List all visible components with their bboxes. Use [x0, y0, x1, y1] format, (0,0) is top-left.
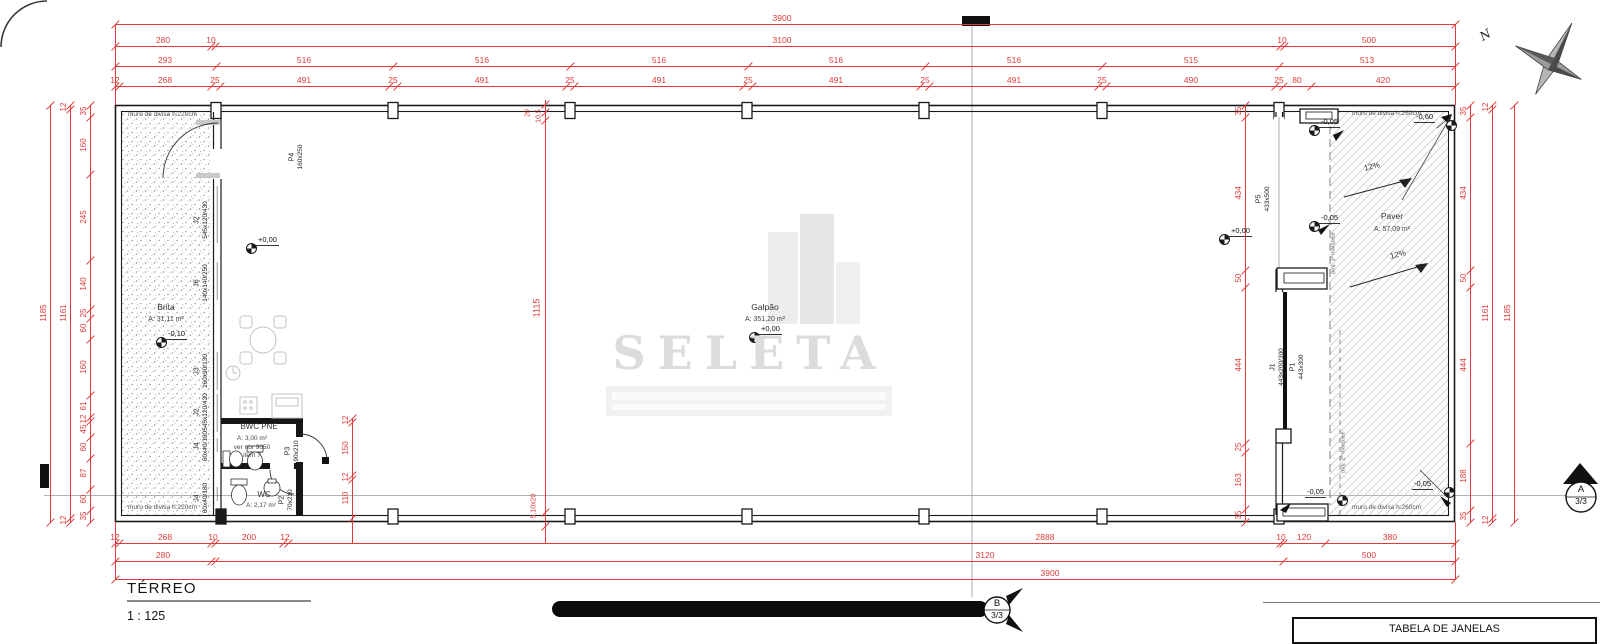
- level-paver-mid-icon: [1309, 221, 1320, 232]
- dim-label: 87: [80, 469, 88, 478]
- dim-label: 516: [652, 56, 666, 65]
- room-brita-area: A: 31,11 m²: [148, 316, 184, 323]
- sheet-title: TÉRREO: [127, 580, 197, 597]
- dim-label: 188: [1460, 469, 1468, 482]
- marquise-note-2: proj. 2ª marquise: [1341, 431, 1347, 472]
- dim-label: 200: [242, 533, 256, 542]
- window-j1-code: J1: [1270, 363, 1277, 370]
- level-paver-br: -0,05: [1412, 480, 1433, 490]
- window-j4a-size: 60x40/180: [203, 431, 210, 461]
- ramp-slope-1: 12%: [1363, 161, 1380, 173]
- dim-label: 268: [158, 533, 172, 542]
- dim-bottom-detail: [115, 543, 1455, 544]
- dim-label: 120: [1297, 533, 1311, 542]
- dim-label: 12: [1482, 103, 1490, 112]
- dim-label: 500: [1362, 551, 1376, 560]
- dim-label: 516: [297, 56, 311, 65]
- floorplan-sheet[interactable]: BritaA: 31,11 m²GalpãoA: 351,20 m²PaverA…: [0, 0, 1600, 640]
- level-paver-top-icon: [1309, 125, 1320, 136]
- level-brita-icon: [156, 337, 167, 348]
- dim-label: 3120: [976, 551, 995, 560]
- dim-label: 61: [80, 402, 88, 411]
- dim-label: 491: [297, 76, 311, 85]
- dim-label: 45: [80, 425, 88, 434]
- dim-label: 10: [1276, 533, 1285, 542]
- dim-label: 25: [1097, 76, 1106, 85]
- dim-label: 1161: [60, 304, 68, 321]
- window-j3-size: 160x90/130: [203, 354, 210, 388]
- room-wc-area: A: 2,17 m²: [246, 503, 276, 510]
- dim-bottom-groups: [115, 561, 1455, 562]
- dim-label: 12: [60, 103, 68, 112]
- dim-label: 25: [1235, 443, 1243, 452]
- dim-label: 12: [342, 416, 350, 425]
- window-j1-size: 443x200/300: [1279, 348, 1286, 386]
- dim-right-total: [1514, 105, 1515, 522]
- dim-label: 491: [652, 76, 666, 85]
- dim-label: 444: [1235, 358, 1243, 371]
- dim-label: 25: [920, 76, 929, 85]
- dim-paver-inner: [1245, 105, 1246, 522]
- dim-label: 163: [1235, 473, 1243, 486]
- room-wc-name: WC: [257, 491, 270, 499]
- dim-label: 12: [80, 415, 88, 424]
- window-j6-size: 140x140/250: [203, 264, 210, 302]
- dim-label: 420: [1376, 76, 1390, 85]
- dim-label: 110: [342, 492, 350, 505]
- dim-label: 491: [1007, 76, 1021, 85]
- marquise-note-1: proj. 1ª marquise: [1331, 232, 1337, 273]
- dim-top-detail: [115, 86, 1455, 87]
- dim-label: 25: [565, 76, 574, 85]
- dim-label: 1185: [1504, 304, 1512, 321]
- wall-note-bottom-right: muro de divisa h:260cm: [1352, 505, 1421, 512]
- annotation-layer: BritaA: 31,11 m²GalpãoA: 351,20 m²PaverA…: [0, 0, 1600, 640]
- dim-label: 3100: [773, 36, 792, 45]
- room-bwc-note1: ver nbr 9050: [234, 445, 271, 452]
- dim-label: 3900: [773, 14, 792, 23]
- door-p4-code: P4: [289, 153, 296, 162]
- window-table-title: TABELA DE JANELAS: [1294, 623, 1595, 635]
- door-p4-size: 160x250: [298, 145, 305, 170]
- dim-label: 150: [342, 441, 350, 454]
- level-paver-bl: -0,05: [1305, 488, 1326, 498]
- room-galpao-name: Galpão: [751, 303, 778, 312]
- level-paver-top: -0,05: [1319, 118, 1340, 128]
- dim-label: 35: [80, 107, 88, 116]
- gate-p1-code: P1: [1290, 363, 1297, 372]
- dim-label: 25: [743, 76, 752, 85]
- door-p2-size: 70x210: [288, 489, 295, 510]
- window-j6-code: J6: [194, 279, 201, 286]
- dim-label: 12: [60, 516, 68, 525]
- window-j2b-size: 545x120/430: [203, 393, 210, 431]
- section-b-letter: B: [994, 598, 1000, 609]
- dim-left-shell: [70, 105, 71, 522]
- dim-label: 160: [80, 138, 88, 151]
- room-galpao-area: A: 351,20 m²: [745, 316, 785, 323]
- gate-p5-size: 433x500: [1265, 187, 1272, 212]
- dim-label: 50: [1235, 274, 1243, 283]
- level-street: -0,60: [1414, 113, 1435, 123]
- level-west-icon: [246, 243, 257, 254]
- level-west: +0,00: [256, 236, 279, 246]
- room-brita-name: Brita: [157, 303, 174, 312]
- window-j3-code: J3: [194, 367, 201, 374]
- ramp-slope-2: 12%: [1389, 249, 1406, 261]
- dim-label: 516: [1007, 56, 1021, 65]
- dim-top-bays: [115, 66, 1455, 67]
- dim-label: 444: [1460, 358, 1468, 371]
- dim-label: 80: [1292, 76, 1301, 85]
- door-p3-size: 90x210: [294, 440, 301, 461]
- dim-extension: [1455, 24, 1456, 105]
- dim-label: 60: [80, 443, 88, 452]
- dim-label: 516: [829, 56, 843, 65]
- dim-extension: [115, 24, 116, 105]
- dim-label: 25: [1274, 76, 1283, 85]
- dim-label: 2888: [1036, 533, 1055, 542]
- dim-label: 434: [1235, 186, 1243, 199]
- dim-1115: 1115: [533, 299, 542, 318]
- level-paver-br-icon: [1444, 487, 1455, 498]
- dim-label: 491: [475, 76, 489, 85]
- dim-label: 515: [1184, 56, 1198, 65]
- dim-window-grid: [545, 100, 546, 543]
- dim-label: 500: [1362, 36, 1376, 45]
- watermark-text: SELETA: [612, 326, 887, 380]
- dim-label: 12: [1482, 516, 1490, 525]
- dim-label: 280: [156, 551, 170, 560]
- window-j4b-size: 60x40/180: [203, 483, 210, 513]
- window-j2a-code: J2: [194, 216, 201, 223]
- dim-label: 245: [80, 210, 88, 223]
- dim-top-groups: [115, 46, 1455, 47]
- section-a-letter: A: [1578, 484, 1584, 495]
- dim-label: 293: [158, 56, 172, 65]
- wall-note-top-right: muro de divisa h:260cm: [1352, 111, 1421, 118]
- dim-label: 1185: [40, 304, 48, 321]
- window-j4a-code: J4: [194, 442, 201, 449]
- dim-label: 35: [80, 512, 88, 521]
- dim-label: 50: [1460, 274, 1468, 283]
- room-paver-area: A: 57,09 m²: [1374, 226, 1410, 233]
- room-bwc-name: BWC PNE: [240, 423, 277, 431]
- dim-label: 491: [829, 76, 843, 85]
- dim-label: 25: [388, 76, 397, 85]
- section-a-sheet: 3/3: [1575, 496, 1587, 506]
- dim-right-detail: [1470, 105, 1471, 522]
- room-bwc-area: A: 3,00 m²: [237, 436, 267, 443]
- dim-label: 35: [1460, 512, 1468, 521]
- dim-bottom-total: [115, 579, 1455, 580]
- dim-label: 380: [1383, 533, 1397, 542]
- level-street-icon: [1446, 120, 1457, 131]
- dim-label: 490: [1184, 76, 1198, 85]
- dim-extension: [115, 522, 116, 579]
- dim-label: 12: [280, 533, 289, 542]
- dim-label: 280: [156, 36, 170, 45]
- door-p2-code: P2: [279, 496, 286, 505]
- dim-label: 35: [1235, 107, 1243, 116]
- door-p3-code: P3: [285, 447, 292, 456]
- dim-left-total: [50, 105, 51, 522]
- level-brita: -0,10: [166, 330, 187, 340]
- gate-p5-code: P5: [1256, 195, 1263, 204]
- dim-label: 25: [210, 76, 219, 85]
- dim-label: 513: [1360, 56, 1374, 65]
- dim-label: 35: [1235, 511, 1243, 520]
- dim-top-total: [115, 24, 1455, 25]
- dim-label: 160: [80, 360, 88, 373]
- titleblock-rule: [1263, 602, 1600, 603]
- dim-label: 60: [80, 495, 88, 504]
- sheet-scale: 1 : 125: [127, 609, 165, 623]
- dim-label: 10: [206, 36, 215, 45]
- room-paver-name: Paver: [1381, 212, 1403, 221]
- dim-label: 12: [342, 473, 350, 482]
- dim-label: 25: [80, 309, 88, 318]
- dim-label: 434: [1460, 186, 1468, 199]
- window-j4b-code: J4: [194, 494, 201, 501]
- window-j2b-code: J2: [194, 408, 201, 415]
- dim-label: 10: [1277, 36, 1286, 45]
- dim-label: 35: [1460, 107, 1468, 116]
- dim-right-shell: [1492, 105, 1493, 522]
- window-j2a-size: 545x120/430: [203, 201, 210, 239]
- level-east: +0,00: [1229, 227, 1252, 237]
- title-underline: [127, 600, 311, 602]
- gate-p1-size: 443x300: [1299, 355, 1306, 380]
- level-east-icon: [1219, 234, 1230, 245]
- dim-extension: [1455, 522, 1456, 579]
- dim-note-20: 20: [525, 109, 532, 117]
- level-paver-mid: -0,05: [1319, 214, 1340, 224]
- dim-label: 1161: [1482, 304, 1490, 321]
- dim-label: 140: [80, 277, 88, 290]
- wall-note-bottom-left: muro de divisa h:220cm: [128, 505, 197, 512]
- dim-label: 3900: [1041, 569, 1060, 578]
- dim-note-5-10-20: 5,10x20: [531, 494, 538, 519]
- section-b-sheet: 3/3: [991, 610, 1003, 620]
- level-paver-bl-icon: [1337, 495, 1348, 506]
- dim-label: 10: [208, 533, 217, 542]
- dim-label: 60: [80, 324, 88, 333]
- room-bwc-note2: item 7: [243, 453, 261, 460]
- wall-note-top-left: muro de divisa h:220cm: [128, 112, 197, 119]
- dim-label: 516: [475, 56, 489, 65]
- dim-label: 268: [158, 76, 172, 85]
